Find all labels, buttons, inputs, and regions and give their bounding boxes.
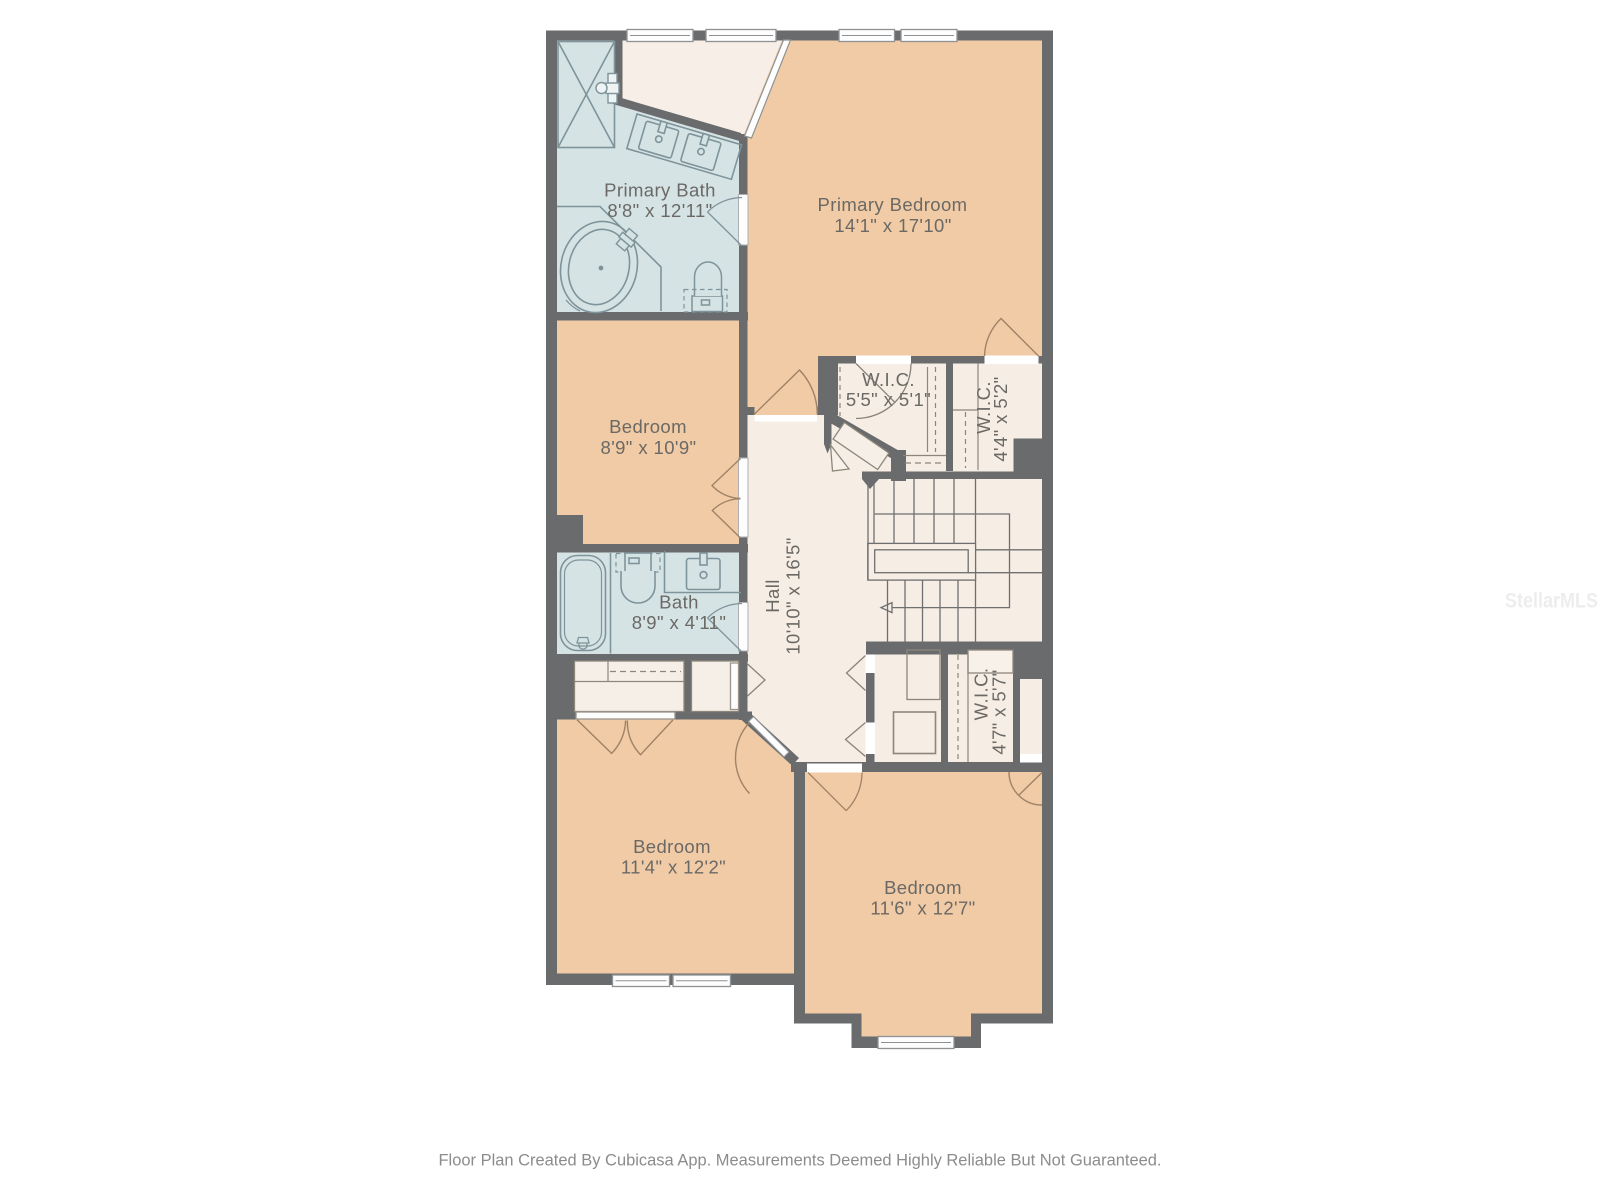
svg-text:5'5" x 5'1": 5'5" x 5'1" [846, 389, 931, 410]
svg-text:11'6" x 12'7": 11'6" x 12'7" [870, 898, 975, 919]
svg-text:8'9" x 10'9": 8'9" x 10'9" [601, 437, 697, 458]
svg-text:14'1" x 17'10": 14'1" x 17'10" [834, 215, 951, 236]
svg-text:11'4" x 12'2": 11'4" x 12'2" [621, 857, 726, 878]
svg-text:8'9" x 4'11": 8'9" x 4'11" [632, 612, 727, 633]
svg-text:W.I.C.: W.I.C. [862, 369, 915, 390]
svg-text:8'8" x 12'11": 8'8" x 12'11" [607, 200, 712, 221]
svg-text:Bedroom: Bedroom [884, 877, 962, 898]
svg-text:Bedroom: Bedroom [633, 836, 711, 857]
svg-text:Bedroom: Bedroom [609, 416, 687, 437]
svg-text:10'10" x 16'5": 10'10" x 16'5" [783, 537, 804, 654]
svg-text:Floor Plan Created By Cubicasa: Floor Plan Created By Cubicasa App. Meas… [439, 1152, 1162, 1170]
svg-text:StellarMLS: StellarMLS [1505, 589, 1598, 613]
svg-text:Primary Bedroom: Primary Bedroom [818, 194, 968, 215]
svg-text:Bath: Bath [659, 592, 699, 613]
svg-text:Primary Bath: Primary Bath [604, 180, 716, 201]
svg-text:4'7" x 5'7": 4'7" x 5'7" [989, 669, 1010, 754]
svg-text:4'4" x 5'2": 4'4" x 5'2" [990, 376, 1011, 461]
svg-text:Hall: Hall [762, 579, 783, 612]
